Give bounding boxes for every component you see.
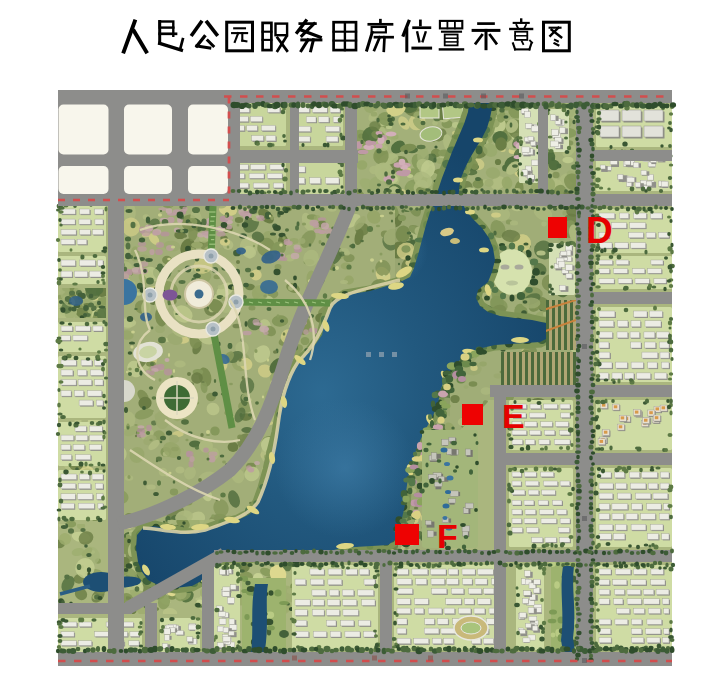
svg-text:E: E	[502, 397, 525, 435]
svg-text:F: F	[437, 517, 458, 555]
svg-text:D: D	[586, 210, 613, 251]
